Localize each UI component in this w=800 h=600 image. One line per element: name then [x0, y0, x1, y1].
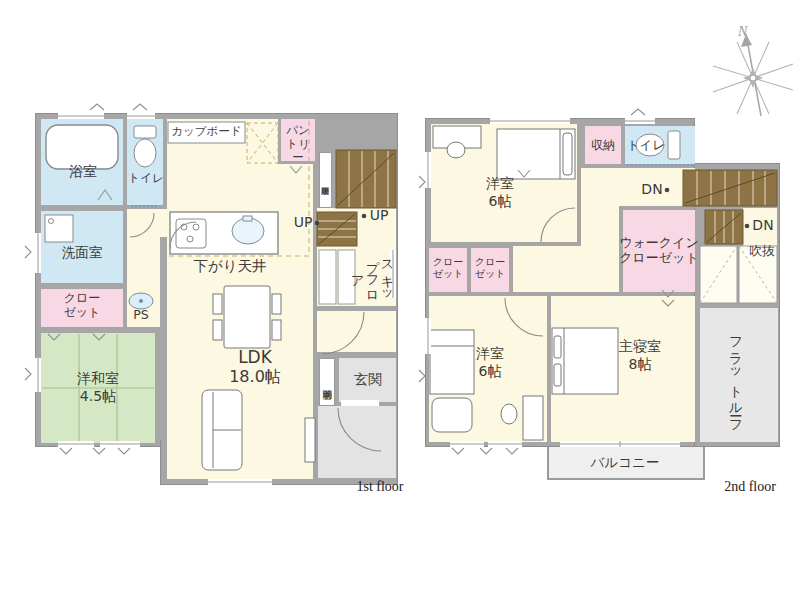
label-skip-floor: スキップフロア — [356, 246, 394, 304]
porch — [318, 406, 396, 478]
caption-floor2: 2nd floor — [710, 479, 790, 496]
room-bath — [41, 119, 123, 205]
label-dn-skip: DN — [748, 217, 778, 234]
label-bedroom-north-name: 洋室 — [465, 175, 535, 192]
room-toilet-1f — [127, 119, 163, 205]
label-washroom: 洗面室 — [48, 245, 116, 261]
label-toilet-2f: トイレ — [623, 138, 669, 153]
hall-2f-lower — [581, 206, 619, 292]
label-jroom-name: 洋和室 — [53, 370, 143, 387]
floor-plan-canvas: N 浴室 トイレ 洗面室 クローゼット 洋和室 4.5帖 PS カップボード パ… — [0, 0, 800, 600]
wall — [160, 237, 167, 327]
label-master-size: 8帖 — [600, 356, 680, 373]
wall — [278, 119, 281, 164]
label-entrance-storage: 玄関収納 — [322, 361, 332, 405]
label-bedroom-south-name: 洋室 — [455, 345, 525, 362]
compass-north-label: N — [737, 24, 748, 39]
compass-icon — [713, 34, 793, 116]
label-jroom-size: 4.5帖 — [53, 388, 143, 405]
label-ps: PS — [121, 308, 161, 323]
label-balcony: バルコニー — [560, 455, 690, 471]
label-pantry: パントリー — [283, 124, 313, 165]
label-storage-2f: 収納 — [586, 138, 620, 152]
label-toilet-1f: トイレ — [123, 172, 169, 186]
label-bath: 浴室 — [53, 163, 113, 180]
label-bedroom-north-size: 6帖 — [465, 193, 535, 210]
label-closet-a: クローゼット — [432, 256, 464, 280]
label-ldk-size: 18.0帖 — [205, 368, 305, 387]
label-closet-b: クローゼット — [474, 256, 506, 280]
label-up-main: UP — [290, 214, 316, 231]
label-bedroom-south-size: 6帖 — [455, 363, 525, 380]
caption-floor1: 1st floor — [340, 479, 420, 496]
label-ldk-name: LDK — [205, 347, 305, 367]
entrance-door-gap — [341, 400, 379, 406]
label-walk-in-closet: ウォークインクローゼット — [618, 235, 700, 266]
wall — [317, 306, 396, 311]
room-ldk — [167, 119, 313, 479]
label-entrance: 玄関 — [340, 371, 396, 388]
corridor-2f — [513, 246, 581, 292]
label-flat-roof: フラットルーフ — [728, 322, 744, 432]
label-closet-1f: クローゼット — [63, 291, 101, 319]
label-master-name: 主寝室 — [600, 338, 680, 355]
label-dn-main: DN — [637, 181, 667, 198]
label-under-stair-storage: 階段下収納 — [320, 155, 329, 207]
label-up-skip: UP — [366, 207, 392, 224]
label-void: 吹抜 — [744, 243, 780, 258]
label-lowered-ceiling: 下がり天井 — [175, 258, 285, 275]
label-cupboard: カップボード — [169, 125, 244, 139]
